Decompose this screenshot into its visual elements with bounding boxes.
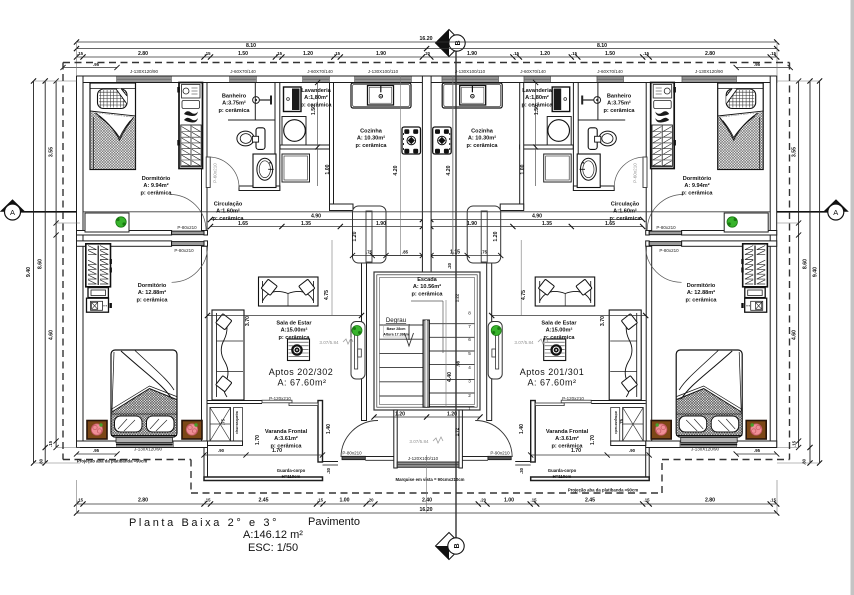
svg-text:Aptos 202/302: Aptos 202/302 <box>269 367 334 377</box>
svg-text:.75: .75 <box>366 250 373 255</box>
svg-text:.15: .15 <box>644 498 651 503</box>
svg-text:Projeção aba da platibanda =90: Projeção aba da platibanda =90cm <box>568 488 639 493</box>
svg-text:6: 6 <box>468 337 471 342</box>
svg-text:churrasqueira: churrasqueira <box>235 411 239 434</box>
svg-text:.15: .15 <box>48 440 53 447</box>
svg-text:2.80: 2.80 <box>705 51 715 57</box>
svg-text:A:1,80m²: A:1,80m² <box>525 94 549 101</box>
svg-text:J-130X120/90: J-130X120/90 <box>695 69 724 74</box>
svg-text:1.00: 1.00 <box>325 164 331 174</box>
svg-text:2.40: 2.40 <box>422 498 432 504</box>
svg-text:8.60: 8.60 <box>38 259 44 269</box>
svg-text:J-130X100/110: J-130X100/110 <box>368 69 399 74</box>
svg-text:Base 28cm: Base 28cm <box>387 327 406 331</box>
svg-text:.15: .15 <box>770 51 777 56</box>
svg-text:1.65: 1.65 <box>605 221 615 227</box>
svg-text:2.45: 2.45 <box>585 498 595 504</box>
svg-text:.15: .15 <box>531 498 538 503</box>
svg-text:.20: .20 <box>480 498 487 503</box>
svg-text:1.50: 1.50 <box>605 51 615 57</box>
svg-text:P-90x210: P-90x210 <box>490 451 510 456</box>
svg-text:1.00: 1.00 <box>504 498 514 504</box>
svg-text:.95: .95 <box>754 448 761 453</box>
svg-text:.80: .80 <box>39 458 44 465</box>
svg-text:.15: .15 <box>317 498 324 503</box>
svg-text:1.20: 1.20 <box>493 231 499 241</box>
svg-text:p: cerâmica: p: cerâmica <box>140 190 172 196</box>
svg-text:A:1.60m²: A:1.60m² <box>216 208 240 215</box>
svg-text:P-60x210: P-60x210 <box>213 163 218 183</box>
svg-text:1.70: 1.70 <box>590 435 596 445</box>
svg-text:1.65: 1.65 <box>238 221 248 227</box>
svg-text:1.20: 1.20 <box>395 412 405 418</box>
svg-text:Dormitório: Dormitório <box>142 176 171 182</box>
svg-text:Cozinha: Cozinha <box>360 129 383 135</box>
svg-text:A:15.00m²: A:15.00m² <box>281 327 308 334</box>
svg-text:4.75: 4.75 <box>324 290 330 300</box>
svg-text:Cozinha: Cozinha <box>471 129 494 135</box>
svg-text:Varanda Frontal: Varanda Frontal <box>546 429 589 435</box>
svg-text:P-80x210: P-80x210 <box>342 451 362 456</box>
svg-text:P-80x210: P-80x210 <box>656 225 676 230</box>
svg-text:1.00: 1.00 <box>339 498 349 504</box>
svg-text:.15: .15 <box>77 51 84 56</box>
svg-text:1.90: 1.90 <box>376 51 386 57</box>
svg-text:P-120x210: P-120x210 <box>269 396 291 401</box>
svg-text:p: cerâmica: p: cerâmica <box>411 291 443 297</box>
svg-text:A:15.00m²: A:15.00m² <box>546 327 573 334</box>
svg-text:B: B <box>455 40 462 45</box>
svg-text:J-120X100/110: J-120X100/110 <box>408 456 439 461</box>
svg-text:1.70: 1.70 <box>272 448 282 454</box>
svg-text:4: 4 <box>468 365 471 370</box>
svg-text:Lavanderia: Lavanderia <box>301 88 331 94</box>
svg-text:4.40: 4.40 <box>447 372 453 382</box>
svg-text:.15: .15 <box>276 51 283 56</box>
svg-text:Degrau: Degrau <box>386 317 407 324</box>
svg-text:A:3.75m²: A:3.75m² <box>222 100 246 107</box>
svg-text:.75: .75 <box>481 250 488 255</box>
svg-text:A: 10.30m²: A: 10.30m² <box>468 135 496 142</box>
svg-text:1.70: 1.70 <box>255 435 261 445</box>
svg-text:J-130X100/110: J-130X100/110 <box>455 69 486 74</box>
svg-text:Pavimento: Pavimento <box>308 516 360 528</box>
svg-text:A:3.75m²: A:3.75m² <box>607 100 631 107</box>
svg-text:.15: .15 <box>205 498 212 503</box>
svg-text:Projeção aba da platibanda =90: Projeção aba da platibanda =90cm <box>77 459 148 464</box>
svg-text:p: cerâmica: p: cerâmica <box>466 143 498 149</box>
svg-text:.90: .90 <box>218 448 225 453</box>
svg-text:4.60: 4.60 <box>792 330 798 340</box>
svg-text:Guarda-corpo: Guarda-corpo <box>548 468 577 473</box>
svg-text:A: 67.60m²: A: 67.60m² <box>527 378 576 388</box>
svg-text:1.22: 1.22 <box>455 293 460 302</box>
svg-text:Banheiro: Banheiro <box>607 94 632 100</box>
svg-text:A:146.12 m²: A:146.12 m² <box>243 529 303 541</box>
svg-text:1.40: 1.40 <box>326 424 332 434</box>
svg-text:3.70: 3.70 <box>600 316 606 326</box>
svg-text:8: 8 <box>468 311 471 316</box>
svg-text:2.80: 2.80 <box>138 498 148 504</box>
svg-text:.15: .15 <box>205 51 212 56</box>
svg-text:Dormitório: Dormitório <box>687 283 716 289</box>
svg-text:5: 5 <box>468 351 471 356</box>
svg-text:8.60: 8.60 <box>803 259 809 269</box>
svg-text:16.20: 16.20 <box>420 36 433 42</box>
svg-text:2.80: 2.80 <box>138 51 148 57</box>
svg-text:.20: .20 <box>368 498 375 503</box>
svg-text:4.75: 4.75 <box>521 290 527 300</box>
svg-text:16.20: 16.20 <box>420 507 433 513</box>
svg-text:1.50: 1.50 <box>534 105 540 115</box>
svg-text:1.20: 1.20 <box>447 412 457 418</box>
svg-text:.15: .15 <box>643 51 650 56</box>
svg-text:1: 1 <box>468 406 471 411</box>
svg-text:.98: .98 <box>456 360 461 367</box>
svg-text:1.15: 1.15 <box>450 250 460 256</box>
svg-text:8.10: 8.10 <box>597 43 607 49</box>
svg-text:3: 3 <box>468 379 471 384</box>
svg-text:1.20: 1.20 <box>540 51 550 57</box>
svg-text:Varanda Frontal: Varanda Frontal <box>265 429 308 435</box>
svg-text:.95: .95 <box>93 448 100 453</box>
svg-text:p: cerâmica: p: cerâmica <box>218 108 250 114</box>
svg-text:Banheiro: Banheiro <box>222 94 247 100</box>
svg-text:Aptos 201/301: Aptos 201/301 <box>520 367 585 377</box>
svg-text:J-60X70/140: J-60X70/140 <box>597 69 623 74</box>
svg-text:P-80x210: P-80x210 <box>174 248 194 253</box>
svg-text:Sala de Estar: Sala de Estar <box>276 321 312 327</box>
svg-text:A: A <box>10 208 15 217</box>
svg-text:.20: .20 <box>424 51 431 56</box>
svg-text:B: B <box>454 543 461 548</box>
svg-text:.15: .15 <box>334 51 341 56</box>
svg-text:4.90: 4.90 <box>311 214 321 220</box>
svg-text:J-60X70/140: J-60X70/140 <box>520 69 546 74</box>
svg-text:A: A <box>833 208 838 217</box>
svg-text:A: 9.94m²: A: 9.94m² <box>684 182 709 189</box>
svg-text:2.80: 2.80 <box>705 498 715 504</box>
svg-text:A:1,80m²: A:1,80m² <box>304 94 328 101</box>
svg-text:Planta Baixa 2° e 3°: Planta Baixa 2° e 3° <box>129 517 279 529</box>
svg-text:p: cerâmica: p: cerâmica <box>685 297 717 303</box>
svg-text:Dormitório: Dormitório <box>138 283 167 289</box>
svg-text:4.20: 4.20 <box>393 165 399 175</box>
svg-text:4.60: 4.60 <box>49 330 55 340</box>
svg-text:.15: .15 <box>513 51 520 56</box>
svg-text:.75: .75 <box>619 418 624 425</box>
svg-text:Escada: Escada <box>417 277 437 283</box>
svg-text:1.00: 1.00 <box>520 164 526 174</box>
svg-text:A: 9.94m²: A: 9.94m² <box>143 182 168 189</box>
svg-text:3.55: 3.55 <box>49 147 55 157</box>
svg-text:1.35: 1.35 <box>542 221 552 227</box>
svg-text:1.35: 1.35 <box>301 221 311 227</box>
svg-text:.15: .15 <box>77 498 84 503</box>
svg-text:1.90: 1.90 <box>376 221 386 227</box>
svg-text:A:1.60m²: A:1.60m² <box>613 208 637 215</box>
svg-text:Circulação: Circulação <box>611 202 640 208</box>
svg-text:.20: .20 <box>447 262 452 269</box>
svg-text:Sala de Estar: Sala de Estar <box>541 321 577 327</box>
svg-text:.75: .75 <box>221 418 226 425</box>
svg-text:.90: .90 <box>629 448 636 453</box>
svg-text:Guarda-corpo: Guarda-corpo <box>277 468 306 473</box>
svg-text:1.40: 1.40 <box>519 424 525 434</box>
svg-text:3.07/5.84: 3.07/5.84 <box>319 340 339 345</box>
svg-text:A: 67.60m²: A: 67.60m² <box>277 378 326 388</box>
svg-text:7: 7 <box>468 324 471 329</box>
svg-text:.80: .80 <box>802 458 807 465</box>
svg-text:A:3.61m²: A:3.61m² <box>555 435 579 442</box>
svg-text:P-60x210: P-60x210 <box>633 163 638 183</box>
svg-text:1.20: 1.20 <box>352 231 358 241</box>
svg-text:p: cerâmica: p: cerâmica <box>278 335 310 341</box>
svg-text:p: cerâmica: p: cerâmica <box>603 108 635 114</box>
svg-text:4.90: 4.90 <box>532 214 542 220</box>
svg-text:1.90: 1.90 <box>467 221 477 227</box>
svg-text:8.10: 8.10 <box>246 43 256 49</box>
svg-text:p: cerâmica: p: cerâmica <box>136 297 168 303</box>
svg-text:9.40: 9.40 <box>813 267 819 277</box>
svg-text:H=110cm: H=110cm <box>553 474 572 479</box>
svg-text:J-130X120/90: J-130X120/90 <box>134 447 163 452</box>
svg-text:ESC: 1/50: ESC: 1/50 <box>248 542 298 554</box>
svg-text:9.40: 9.40 <box>26 267 32 277</box>
svg-text:Dormitório: Dormitório <box>683 176 712 182</box>
svg-text:1.90: 1.90 <box>467 51 477 57</box>
svg-text:p: cerâmica: p: cerâmica <box>681 190 713 196</box>
svg-text:J-130X120/90: J-130X120/90 <box>130 69 159 74</box>
svg-text:J-130X120/90: J-130X120/90 <box>691 447 720 452</box>
svg-text:3.07/5.84: 3.07/5.84 <box>409 439 429 444</box>
svg-text:p: cerâmica: p: cerâmica <box>355 143 387 149</box>
svg-text:Lavanderia: Lavanderia <box>522 88 552 94</box>
svg-text:2: 2 <box>468 393 471 398</box>
svg-text:.85: .85 <box>402 250 409 255</box>
svg-text:1.50: 1.50 <box>238 51 248 57</box>
svg-text:.15: .15 <box>770 498 777 503</box>
svg-text:.95: .95 <box>754 62 761 67</box>
svg-text:2.45: 2.45 <box>258 498 268 504</box>
svg-text:A: 10.56m²: A: 10.56m² <box>413 283 441 290</box>
svg-text:J-60X70/140: J-60X70/140 <box>307 69 333 74</box>
svg-text:H=110cm: H=110cm <box>282 474 301 479</box>
svg-text:.30: .30 <box>326 467 331 474</box>
svg-text:1.50: 1.50 <box>311 105 317 115</box>
svg-text:J-60X70/140: J-60X70/140 <box>230 69 256 74</box>
svg-text:4.20: 4.20 <box>446 165 452 175</box>
svg-text:Marquise em vista = 90cmx2: Marquise em vista = 90cmx210cm <box>396 477 465 482</box>
svg-text:A: 12.88m²: A: 12.88m² <box>138 289 166 296</box>
svg-text:A: 12.88m²: A: 12.88m² <box>687 289 715 296</box>
svg-text:.15: .15 <box>792 440 797 447</box>
svg-text:P-80x210: P-80x210 <box>659 248 679 253</box>
svg-text:.30: .30 <box>519 467 524 474</box>
svg-text:1.20: 1.20 <box>303 51 313 57</box>
svg-text:A: 10.30m²: A: 10.30m² <box>357 135 385 142</box>
svg-text:.95: .95 <box>93 62 100 67</box>
svg-text:3.70: 3.70 <box>245 316 251 326</box>
svg-text:Circulação: Circulação <box>214 202 243 208</box>
svg-text:P-80x210: P-80x210 <box>177 225 197 230</box>
svg-text:A:3.61m²: A:3.61m² <box>274 435 298 442</box>
svg-text:1.72: 1.72 <box>455 427 460 436</box>
svg-text:p: cerâmica: p: cerâmica <box>543 335 575 341</box>
svg-text:Altura 17.38cm: Altura 17.38cm <box>383 333 409 337</box>
svg-text:P-120x210: P-120x210 <box>562 396 584 401</box>
svg-text:3.07/5.84: 3.07/5.84 <box>514 340 534 345</box>
svg-text:.15: .15 <box>571 51 578 56</box>
svg-text:1.70: 1.70 <box>571 448 581 454</box>
svg-text:3.55: 3.55 <box>792 147 798 157</box>
